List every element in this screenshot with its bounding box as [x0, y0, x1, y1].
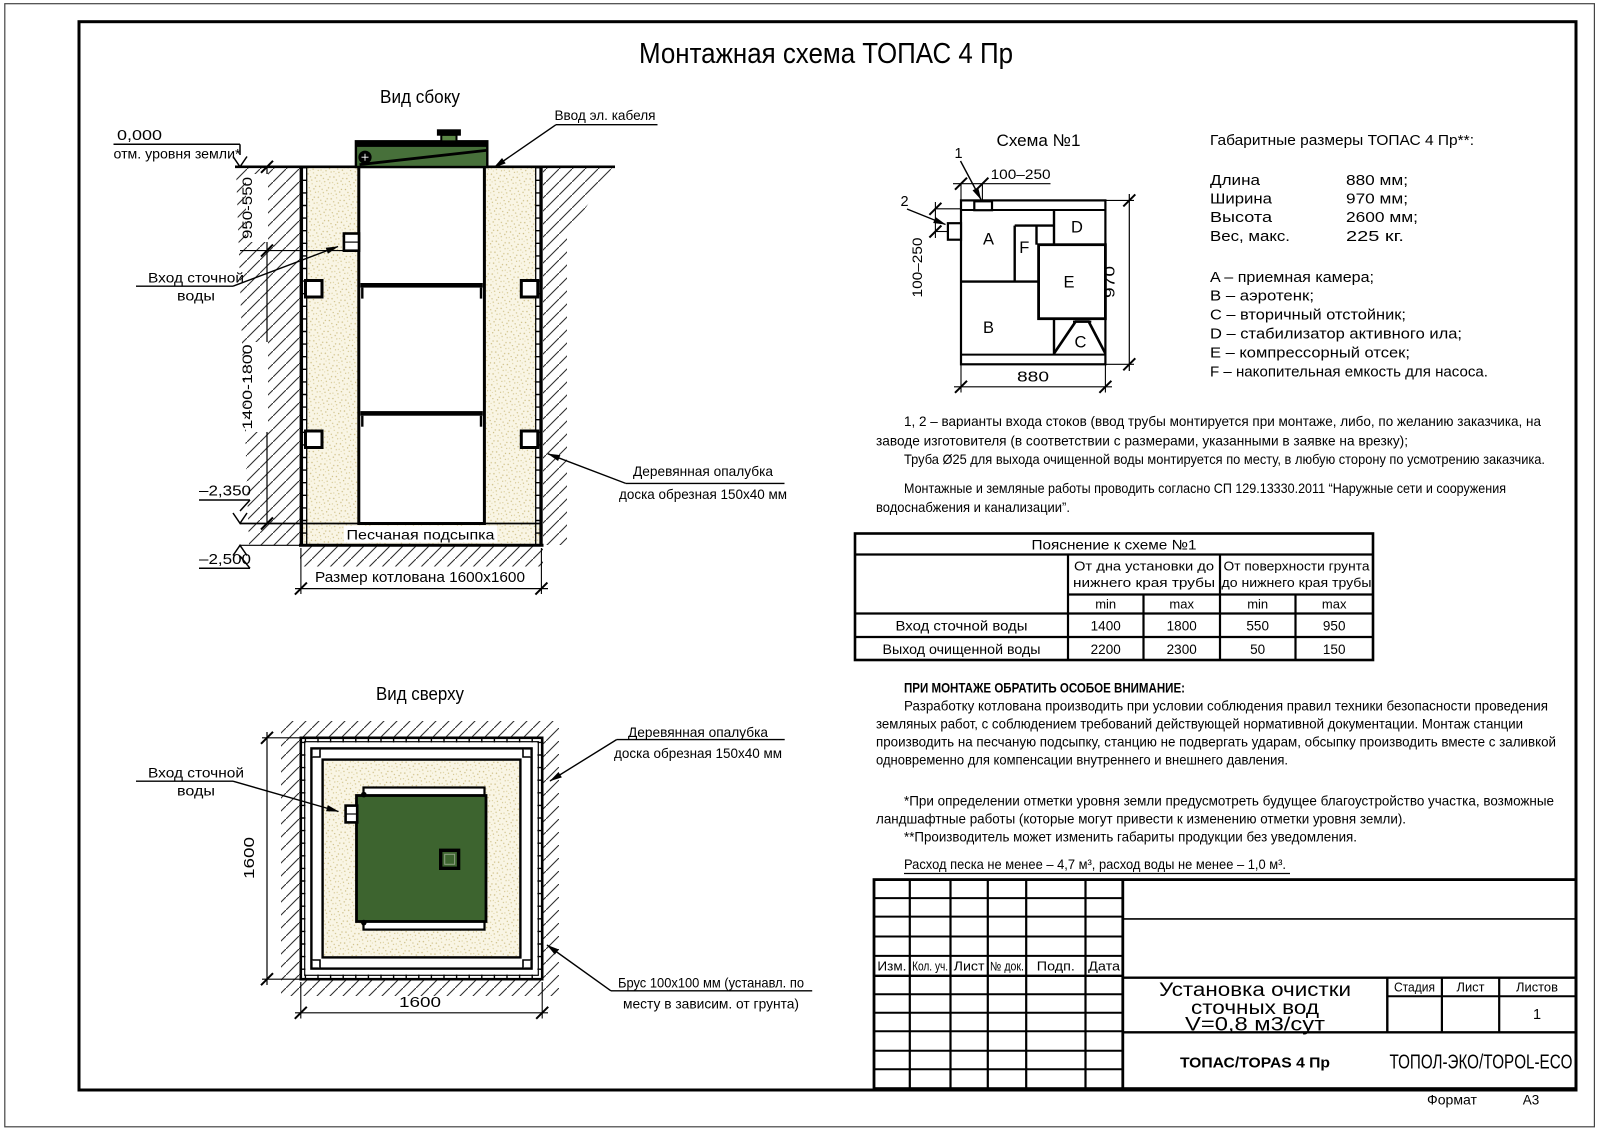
svg-text:Схема №1: Схема №1	[997, 131, 1081, 150]
svg-text:От дна установки до: От дна установки до	[1074, 559, 1214, 574]
svg-text:1400: 1400	[1091, 619, 1121, 634]
svg-text:воды: воды	[177, 783, 215, 799]
svg-text:C: C	[1074, 334, 1086, 352]
svg-text:100–250: 100–250	[991, 167, 1051, 182]
svg-text:1600: 1600	[242, 837, 258, 879]
svg-text:Деревянная опалубка: Деревянная опалубка	[633, 463, 773, 479]
svg-text:водоснабжения и канализации”.: водоснабжения и канализации”.	[876, 499, 1070, 515]
svg-text:F – накопительная емкость для: F – накопительная емкость для насоса.	[1210, 365, 1488, 381]
svg-text:225 кг.: 225 кг.	[1346, 229, 1404, 245]
svg-text:C – вторичный отстойник;: C – вторичный отстойник;	[1210, 308, 1406, 324]
svg-text:Дата: Дата	[1088, 960, 1120, 974]
svg-text:Пояснение к схеме №1: Пояснение к схеме №1	[1032, 537, 1197, 553]
svg-text:550: 550	[1246, 619, 1269, 634]
svg-text:Выход очищенной воды: Выход очищенной воды	[883, 642, 1041, 657]
svg-text:Лист: Лист	[1457, 981, 1485, 995]
svg-text:№ док.: № док.	[990, 960, 1024, 974]
svg-text:Листов: Листов	[1516, 981, 1558, 995]
svg-text:1800: 1800	[1167, 619, 1197, 634]
svg-text:E: E	[1063, 274, 1074, 292]
svg-text:Разработку котлована производи: Разработку котлована производить при усл…	[904, 698, 1548, 714]
svg-text:950: 950	[1323, 619, 1346, 634]
svg-text:до нижнего края трубы: до нижнего края трубы	[1222, 575, 1372, 590]
svg-text:Монтажные и земляные работы пр: Монтажные и земляные работы проводить со…	[904, 480, 1506, 496]
svg-text:E – компрессорный отсек;: E – компрессорный отсек;	[1210, 346, 1410, 362]
svg-text:одновременно для компенсации в: одновременно для компенсации внутреннего…	[876, 752, 1288, 768]
svg-text:Кол. уч.: Кол. уч.	[912, 960, 948, 974]
svg-text:880 мм;: 880 мм;	[1346, 173, 1408, 189]
svg-text:Вес, макс.: Вес, макс.	[1210, 229, 1290, 245]
svg-text:отм. уровня земли*: отм. уровня земли*	[114, 147, 242, 162]
svg-text:880: 880	[1017, 370, 1049, 386]
svg-text:ландшафтные работы (которые мо: ландшафтные работы (которые могут привес…	[876, 811, 1406, 827]
svg-text:**Производитель может изменить: **Производитель может изменить габариты …	[904, 829, 1357, 845]
svg-text:Высота: Высота	[1210, 210, 1273, 226]
svg-text:1: 1	[1533, 1007, 1541, 1023]
svg-text:1: 1	[954, 146, 962, 162]
svg-text:Вход сточной: Вход сточной	[148, 765, 244, 781]
svg-text:2: 2	[900, 194, 908, 210]
svg-text:F: F	[1019, 239, 1029, 257]
svg-text:min: min	[1095, 597, 1116, 612]
svg-text:Вход сточной: Вход сточной	[148, 270, 244, 286]
svg-text:*При определении отметки уровн: *При определении отметки уровня земли пр…	[904, 793, 1554, 809]
svg-text:2600 мм;: 2600 мм;	[1346, 210, 1418, 226]
svg-text:Вид сверху: Вид сверху	[376, 684, 464, 704]
svg-text:100–250: 100–250	[910, 238, 925, 298]
svg-text:Вид сбоку: Вид сбоку	[380, 87, 460, 107]
svg-text:1, 2 – варианты входа стоков: 1, 2 – варианты входа стоков (ввод трубы…	[904, 413, 1541, 429]
svg-text:Монтажная схема ТОПАС 4 Пр: Монтажная схема ТОПАС 4 Пр	[639, 38, 1013, 70]
svg-text:1600: 1600	[399, 995, 441, 1011]
svg-text:ПРИ МОНТАЖЕ ОБРАТИТЬ ОСОБОЕ ВН: ПРИ МОНТАЖЕ ОБРАТИТЬ ОСОБОЕ ВНИМАНИЕ:	[904, 680, 1185, 696]
svg-text:воды: воды	[177, 288, 215, 304]
svg-text:2300: 2300	[1167, 642, 1197, 657]
svg-text:Формат: Формат	[1427, 1093, 1477, 1108]
svg-text:А3: А3	[1523, 1093, 1540, 1108]
svg-text:Вход сточной воды: Вход сточной воды	[896, 619, 1028, 634]
svg-text:A: A	[983, 231, 994, 249]
svg-text:Стадия: Стадия	[1394, 981, 1435, 995]
svg-text:V=0,8 м3/сут: V=0,8 м3/сут	[1185, 1015, 1325, 1036]
svg-text:Длина: Длина	[1210, 173, 1261, 189]
svg-text:От поверхности грунта: От поверхности грунта	[1224, 559, 1371, 574]
svg-text:месту в зависим. от грунта): месту в зависим. от грунта)	[623, 996, 799, 1012]
svg-text:Подп.: Подп.	[1037, 960, 1075, 974]
svg-text:Габаритные размеры ТОПАС 4 Пр*: Габаритные размеры ТОПАС 4 Пр**:	[1210, 133, 1474, 149]
svg-text:заводе изготовителя (в соответ: заводе изготовителя (в соответствии с ра…	[876, 433, 1408, 449]
svg-text:производить на песчаную подсып: производить на песчаную подсыпку, станци…	[876, 734, 1556, 750]
svg-text:доска обрезная 150х40 мм: доска обрезная 150х40 мм	[619, 486, 787, 502]
svg-text:0,000: 0,000	[117, 128, 162, 144]
svg-text:1400-1800: 1400-1800	[239, 344, 255, 429]
svg-text:950-550: 950-550	[239, 177, 255, 239]
svg-text:970: 970	[1103, 266, 1119, 298]
svg-text:Труба Ø25 для выхода очищенной: Труба Ø25 для выхода очищенной воды монт…	[904, 451, 1545, 467]
svg-text:Деревянная опалубка: Деревянная опалубка	[628, 724, 768, 740]
svg-text:Лист: Лист	[954, 960, 985, 974]
svg-text:150: 150	[1323, 642, 1346, 657]
svg-text:min: min	[1247, 597, 1268, 612]
svg-text:Размер котлована 1600х1600: Размер котлована 1600х1600	[315, 570, 525, 586]
svg-text:доска обрезная 150х40 мм: доска обрезная 150х40 мм	[614, 745, 782, 761]
svg-text:ТОПАС/TOPAS 4 Пр: ТОПАС/TOPAS 4 Пр	[1180, 1055, 1330, 1072]
svg-text:–2,350: –2,350	[199, 484, 251, 500]
svg-text:Ввод эл. кабеля: Ввод эл. кабеля	[555, 107, 656, 123]
svg-text:земляных работ, с соблюдением: земляных работ, с соблюдением требований…	[876, 716, 1523, 732]
svg-text:Брус 100х100 мм (устанавл. по: Брус 100х100 мм (устанавл. по	[618, 975, 804, 991]
svg-text:D: D	[1071, 219, 1083, 237]
svg-text:970 мм;: 970 мм;	[1346, 192, 1408, 208]
svg-text:max: max	[1322, 597, 1347, 612]
svg-text:Расход песка не менее – 4,7 м³: Расход песка не менее – 4,7 м³, расход в…	[904, 856, 1286, 872]
svg-text:Ширина: Ширина	[1210, 192, 1273, 208]
svg-text:ТОПОЛ-ЭКО/TOPOL-ECO: ТОПОЛ-ЭКО/TOPOL-ECO	[1390, 1051, 1573, 1074]
svg-text:50: 50	[1250, 642, 1265, 657]
svg-text:Песчаная подсыпка: Песчаная подсыпка	[347, 526, 495, 542]
svg-text:max: max	[1169, 597, 1194, 612]
svg-text:Изм.: Изм.	[877, 960, 906, 974]
svg-text:A – приемная камера;: A – приемная камера;	[1210, 270, 1374, 286]
svg-text:2200: 2200	[1091, 642, 1121, 657]
svg-text:B: B	[983, 319, 994, 337]
svg-text:B – аэротенк;: B – аэротенк;	[1210, 289, 1314, 305]
svg-text:D – стабилизатор активного ила: D – стабилизатор активного ила;	[1210, 327, 1462, 343]
svg-text:нижнего края трубы: нижнего края трубы	[1073, 575, 1215, 590]
